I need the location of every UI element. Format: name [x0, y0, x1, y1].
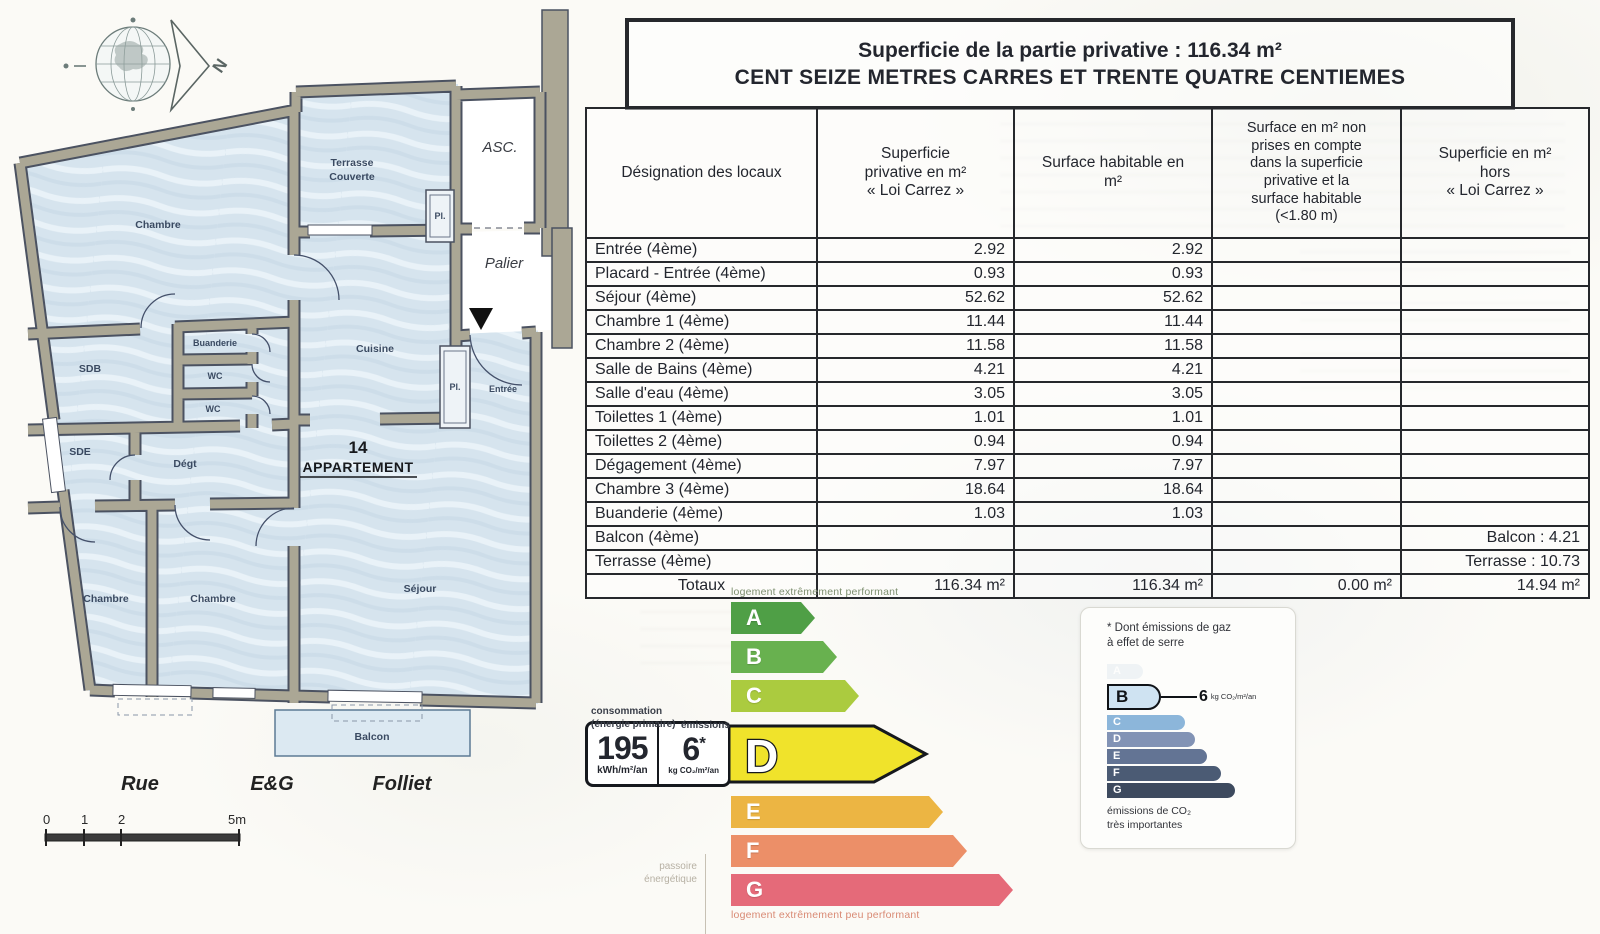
north-label: N	[209, 55, 232, 76]
table-header-row: Désignation des locaux Superficie privat…	[586, 108, 1589, 238]
wall-strip-landing	[552, 228, 572, 348]
cell-loi_carrez: 52.62	[817, 286, 1014, 310]
table-row: Entrée (4ème)2.922.92	[586, 238, 1589, 262]
cell-habitable: 1.01	[1014, 406, 1212, 430]
cell-loi_carrez: 0.94	[817, 430, 1014, 454]
cell-loi_carrez: 2.92	[817, 238, 1014, 262]
dpe-class-letter: F	[731, 838, 759, 864]
dpe-emissions-caption: émissions	[681, 720, 730, 733]
ges-unit: kg CO₂/m²/an	[1211, 692, 1256, 701]
col-header-designation: Désignation des locaux	[586, 108, 817, 238]
cell-label: Dégagement (4ème)	[586, 454, 817, 478]
cell-hors_carrez	[1401, 286, 1589, 310]
cell-hors_carrez	[1401, 430, 1589, 454]
ges-pointer-line	[1161, 696, 1197, 698]
cell-hors_carrez	[1401, 262, 1589, 286]
street-word-2: E&G	[250, 773, 293, 795]
cell-label: Terrasse (4ème)	[586, 550, 817, 574]
cell-label: Placard - Entrée (4ème)	[586, 262, 817, 286]
cell-habitable: 1.03	[1014, 502, 1212, 526]
cell-loi_carrez: 0.93	[817, 262, 1014, 286]
cell-loi_carrez: 7.97	[817, 454, 1014, 478]
totals-habitable: 116.34 m²	[1014, 574, 1212, 598]
cell-loi_carrez: 4.21	[817, 358, 1014, 382]
col-header-hors-carrez: Superficie en m² hors « Loi Carrez »	[1401, 108, 1589, 238]
ges-class-letter: E	[1107, 751, 1120, 762]
totals-non-prises: 0.00 m²	[1212, 574, 1401, 598]
cell-non_prises	[1212, 358, 1401, 382]
cell-non_prises	[1212, 310, 1401, 334]
room-label-entree: Entrée	[489, 384, 517, 394]
cell-non_prises	[1212, 286, 1401, 310]
dpe-class-bar-e: E	[731, 796, 943, 828]
dpe-top-caption: logement extrêmement performant	[731, 586, 1025, 598]
ges-value: 6	[1199, 688, 1208, 706]
table-row: Salle de Bains (4ème)4.214.21	[586, 358, 1589, 382]
room-label-degt: Dégt	[173, 458, 197, 470]
table-row: Placard - Entrée (4ème)0.930.93	[586, 262, 1589, 286]
room-label-chambre-bm: Chambre	[190, 593, 236, 605]
cell-hors_carrez	[1401, 334, 1589, 358]
table-row: Chambre 1 (4ème)11.4411.44	[586, 310, 1589, 334]
ges-class-bar-d: D	[1107, 732, 1195, 747]
page-subtitle: CENT SEIZE METRES CARRES ET TRENTE QUATR…	[735, 66, 1406, 90]
cell-label: Entrée (4ème)	[586, 238, 817, 262]
cell-non_prises	[1212, 550, 1401, 574]
cell-label: Toilettes 2 (4ème)	[586, 430, 817, 454]
compass-rose: N	[64, 18, 232, 112]
room-label-wc2: WC	[206, 404, 221, 414]
col-header-non-prises: Surface en m² non prises en compte dans …	[1212, 108, 1401, 238]
cell-habitable: 7.97	[1014, 454, 1212, 478]
cell-hors_carrez	[1401, 454, 1589, 478]
table-row: Balcon (4ème)Balcon : 4.21	[586, 526, 1589, 550]
dpe-class-letter: E	[731, 799, 761, 825]
totals-hors-carrez: 14.94 m²	[1401, 574, 1589, 598]
svg-text:D: D	[745, 730, 778, 782]
cell-hors_carrez	[1401, 502, 1589, 526]
col-header-loi-carrez: Superficie privative en m² « Loi Carrez …	[817, 108, 1014, 238]
cell-loi_carrez: 1.01	[817, 406, 1014, 430]
cell-label: Salle d'eau (4ème)	[586, 382, 817, 406]
room-label-balcon: Balcon	[354, 731, 389, 743]
dpe-class-letter: C	[731, 683, 762, 709]
title-box: Superficie de la partie privative : 116.…	[625, 18, 1515, 110]
street-word-3: Folliet	[373, 773, 433, 795]
room-label-buanderie: Buanderie	[193, 338, 237, 348]
cell-habitable: 3.05	[1014, 382, 1212, 406]
ges-class-letter: G	[1107, 785, 1122, 796]
ges-class-letter: D	[1107, 734, 1121, 745]
dpe-consumption-value: 195 kWh/m²/an	[588, 724, 657, 784]
cell-loi_carrez	[817, 526, 1014, 550]
cell-non_prises	[1212, 430, 1401, 454]
cell-hors_carrez: Balcon : 4.21	[1401, 526, 1589, 550]
table-row: Toilettes 2 (4ème)0.940.94	[586, 430, 1589, 454]
table-row: Dégagement (4ème)7.977.97	[586, 454, 1589, 478]
cell-hors_carrez	[1401, 310, 1589, 334]
ges-emissions-card: * Dont émissions de gaz à effet de serre…	[1080, 607, 1296, 849]
room-label-terrasse-1: Terrasse	[330, 157, 373, 169]
ges-class-bar-f: F	[1107, 766, 1221, 781]
cell-label: Buanderie (4ème)	[586, 502, 817, 526]
ges-class-bar-a: A	[1107, 664, 1143, 679]
cell-habitable	[1014, 526, 1212, 550]
room-label-palier: Palier	[485, 255, 524, 272]
table-row: Terrasse (4ème)Terrasse : 10.73	[586, 550, 1589, 574]
cell-non_prises	[1212, 406, 1401, 430]
cell-hors_carrez	[1401, 382, 1589, 406]
cell-loi_carrez: 18.64	[817, 478, 1014, 502]
table-row: Chambre 2 (4ème)11.5811.58	[586, 334, 1589, 358]
cell-hors_carrez	[1401, 238, 1589, 262]
apartment-word: APPARTEMENT	[302, 459, 413, 475]
cell-non_prises	[1212, 526, 1401, 550]
dpe-class-letter: A	[731, 605, 762, 631]
room-label-asc: ASC.	[481, 139, 517, 156]
ges-note: * Dont émissions de gaz à effet de serre	[1107, 621, 1295, 651]
dpe-passoire-bracket	[705, 854, 706, 934]
table-row: Toilettes 1 (4ème)1.011.01	[586, 406, 1589, 430]
cell-hors_carrez	[1401, 358, 1589, 382]
cell-non_prises	[1212, 334, 1401, 358]
floor-plan: N	[0, 0, 580, 860]
dpe-emissions-value: 6* kg CO₂/m²/an	[659, 724, 728, 784]
dpe-current-arrow: D	[729, 720, 931, 788]
cell-habitable: 18.64	[1014, 478, 1212, 502]
svg-text:1: 1	[81, 812, 88, 827]
cell-habitable: 11.58	[1014, 334, 1212, 358]
cell-loi_carrez: 1.03	[817, 502, 1014, 526]
street-word-1: Rue	[121, 773, 159, 795]
room-label-chambre-tl: Chambre	[135, 219, 181, 231]
dpe-bottom-caption: logement extrêmement peu performant	[731, 909, 1025, 921]
cell-non_prises	[1212, 382, 1401, 406]
room-label-terrasse-2: Couverte	[329, 171, 375, 183]
cell-label: Séjour (4ème)	[586, 286, 817, 310]
cell-non_prises	[1212, 262, 1401, 286]
ges-class-bar-e: E	[1107, 749, 1207, 764]
scale-bar: 0 1 2 5m	[43, 812, 246, 846]
apartment-number: 14	[349, 438, 368, 457]
cell-habitable: 52.62	[1014, 286, 1212, 310]
dpe-energy-chart: logement extrêmement performant consomma…	[585, 586, 1025, 930]
ges-bottom-caption: émissions de CO₂ très importantes	[1107, 805, 1295, 832]
table-row: Salle d'eau (4ème)3.053.05	[586, 382, 1589, 406]
ges-current-class-row: B 6 kg CO₂/m²/an	[1107, 682, 1256, 712]
ges-class-letter: A	[1107, 666, 1121, 677]
ges-current-class-badge: B	[1107, 684, 1161, 710]
dpe-consumption-caption: consommation (énergie primaire)	[591, 706, 675, 731]
cell-label: Chambre 2 (4ème)	[586, 334, 817, 358]
north-arrow	[171, 20, 209, 110]
cell-label: Balcon (4ème)	[586, 526, 817, 550]
room-label-pl-entree: Pl.	[449, 382, 460, 392]
cell-loi_carrez	[817, 550, 1014, 574]
surface-table: Désignation des locaux Superficie privat…	[585, 107, 1590, 599]
dpe-class-bar-a: A	[731, 602, 815, 634]
room-label-pl-top: Pl.	[434, 211, 445, 221]
cell-habitable: 0.93	[1014, 262, 1212, 286]
cell-loi_carrez: 11.44	[817, 310, 1014, 334]
cell-label: Chambre 1 (4ème)	[586, 310, 817, 334]
table-row: Séjour (4ème)52.6252.62	[586, 286, 1589, 310]
ges-class-bar-g: G	[1107, 783, 1235, 798]
cell-label: Toilettes 1 (4ème)	[586, 406, 817, 430]
ges-class-bar-c: C	[1107, 715, 1185, 730]
cell-loi_carrez: 11.58	[817, 334, 1014, 358]
cell-loi_carrez: 3.05	[817, 382, 1014, 406]
cell-non_prises	[1212, 238, 1401, 262]
dpe-passoire-caption: passoire énergétique	[625, 860, 697, 886]
dpe-class-bar-f: F	[731, 835, 967, 867]
elevator-shaft	[458, 92, 540, 229]
ges-class-letter: F	[1107, 768, 1120, 779]
cell-habitable	[1014, 550, 1212, 574]
cell-hors_carrez	[1401, 478, 1589, 502]
svg-text:5m: 5m	[228, 812, 246, 827]
cell-habitable: 2.92	[1014, 238, 1212, 262]
cell-non_prises	[1212, 478, 1401, 502]
cell-non_prises	[1212, 454, 1401, 478]
table-row: Chambre 3 (4ème)18.6418.64	[586, 478, 1589, 502]
dpe-class-bar-g: G	[731, 874, 1013, 906]
ges-class-letter: C	[1107, 717, 1121, 728]
table-row: Buanderie (4ème)1.031.03	[586, 502, 1589, 526]
page-title: Superficie de la partie privative : 116.…	[858, 39, 1282, 63]
dpe-class-bar-c: C	[731, 680, 859, 712]
cell-non_prises	[1212, 502, 1401, 526]
room-label-cuisine: Cuisine	[356, 343, 394, 355]
room-label-chambre-bl: Chambre	[83, 593, 129, 605]
col-header-habitable: Surface habitable en m²	[1014, 108, 1212, 238]
room-label-sejour: Séjour	[404, 583, 437, 595]
room-label-sdb: SDB	[79, 363, 102, 375]
svg-text:2: 2	[118, 812, 125, 827]
landing-area	[458, 230, 550, 334]
cell-label: Chambre 3 (4ème)	[586, 478, 817, 502]
cell-hors_carrez	[1401, 406, 1589, 430]
cell-label: Salle de Bains (4ème)	[586, 358, 817, 382]
cell-hors_carrez: Terrasse : 10.73	[1401, 550, 1589, 574]
dpe-class-bar-b: B	[731, 641, 837, 673]
cell-habitable: 0.94	[1014, 430, 1212, 454]
room-label-wc1: WC	[208, 371, 223, 381]
cell-habitable: 11.44	[1014, 310, 1212, 334]
room-label-sde: SDE	[69, 446, 91, 458]
dpe-class-letter: B	[731, 644, 762, 670]
dpe-class-letter: G	[731, 877, 763, 903]
cell-habitable: 4.21	[1014, 358, 1212, 382]
svg-text:0: 0	[43, 812, 50, 827]
